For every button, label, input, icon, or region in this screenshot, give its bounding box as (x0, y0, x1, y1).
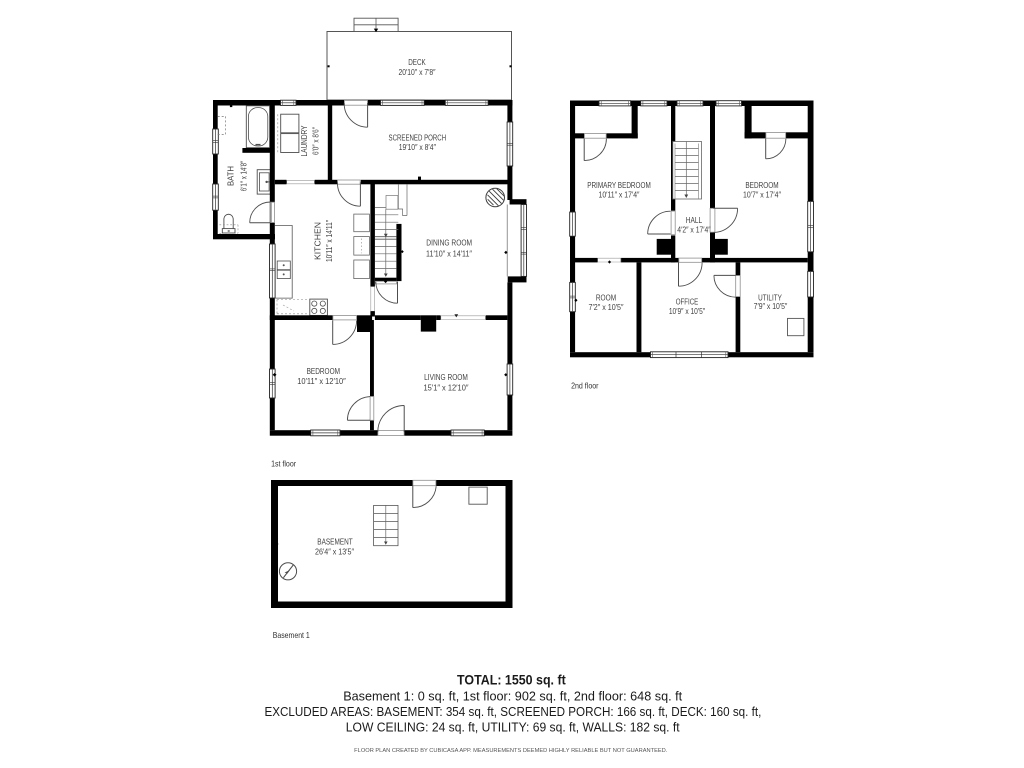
svg-text:SCREENED PORCH: SCREENED PORCH (389, 134, 447, 143)
svg-text:DINING ROOM: DINING ROOM (426, 239, 472, 248)
svg-text:10′11″ x 17′4″: 10′11″ x 17′4″ (599, 190, 640, 199)
svg-text:EXCLUDED AREAS: BASEMENT: 354: EXCLUDED AREAS: BASEMENT: 354 sq. ft, SC… (264, 704, 761, 719)
svg-text:7′9″ x 10′5″: 7′9″ x 10′5″ (754, 302, 788, 311)
svg-text:FLOOR PLAN CREATED BY CUBICASA: FLOOR PLAN CREATED BY CUBICASA APP. MEAS… (354, 748, 668, 754)
svg-text:6′0″ x 8′6″: 6′0″ x 8′6″ (311, 127, 320, 155)
svg-text:TOTAL: 1550 sq. ft: TOTAL: 1550 sq. ft (457, 672, 566, 687)
svg-text:6′1″ x 14′8″: 6′1″ x 14′8″ (239, 161, 248, 192)
svg-text:1st floor: 1st floor (271, 459, 296, 469)
svg-text:10′11″ x 12′10″: 10′11″ x 12′10″ (297, 377, 346, 386)
svg-text:10′7″ x 17′4″: 10′7″ x 17′4″ (743, 190, 781, 199)
svg-text:4′2″ x 17′4″: 4′2″ x 17′4″ (677, 226, 711, 235)
svg-text:KITCHEN: KITCHEN (314, 222, 323, 260)
svg-text:ROOM: ROOM (596, 294, 617, 303)
svg-text:LIVING ROOM: LIVING ROOM (424, 373, 468, 382)
svg-text:15′1″ x 12′10″: 15′1″ x 12′10″ (424, 384, 469, 393)
svg-text:BASEMENT: BASEMENT (317, 538, 352, 547)
svg-text:LOW CEILING: 24 sq. ft, UTILIT: LOW CEILING: 24 sq. ft, UTILITY: 69 sq. … (346, 720, 680, 735)
svg-text:7′2″ x 10′5″: 7′2″ x 10′5″ (589, 303, 624, 312)
svg-text:19′10″ x 8′4″: 19′10″ x 8′4″ (399, 143, 436, 152)
svg-text:BATH: BATH (226, 166, 235, 186)
svg-text:26′4″ x 13′5″: 26′4″ x 13′5″ (315, 547, 354, 556)
svg-text:PRIMARY BEDROOM: PRIMARY BEDROOM (587, 181, 651, 190)
svg-text:BEDROOM: BEDROOM (307, 367, 341, 376)
svg-text:BEDROOM: BEDROOM (745, 181, 779, 190)
svg-text:2nd floor: 2nd floor (571, 381, 599, 391)
svg-text:Basement 1: 0 sq. ft, 1st floo: Basement 1: 0 sq. ft, 1st floor: 902 sq.… (343, 688, 682, 703)
svg-text:11′10″ x 14′11″: 11′10″ x 14′11″ (426, 249, 472, 258)
svg-text:HALL: HALL (686, 216, 703, 225)
svg-text:OFFICE: OFFICE (676, 298, 699, 307)
svg-text:LAUNDRY: LAUNDRY (300, 125, 309, 157)
svg-text:10′11″ x 14′11″: 10′11″ x 14′11″ (325, 220, 334, 262)
svg-text:DECK: DECK (408, 58, 426, 67)
svg-text:10′9″ x 10′5″: 10′9″ x 10′5″ (669, 307, 705, 316)
svg-text:20′10″ x 7′8″: 20′10″ x 7′8″ (399, 68, 436, 77)
svg-text:Basement 1: Basement 1 (273, 630, 310, 640)
